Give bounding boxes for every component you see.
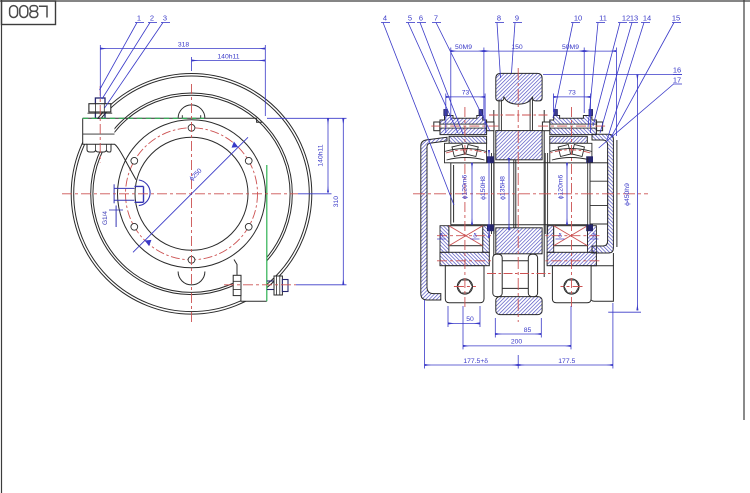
svg-text:50M9: 50M9 — [562, 44, 579, 51]
svg-text:11: 11 — [599, 14, 607, 23]
svg-text:4: 4 — [383, 14, 387, 23]
svg-text:73: 73 — [568, 90, 576, 97]
svg-text:7: 7 — [434, 14, 438, 23]
svg-text:8: 8 — [497, 14, 501, 23]
svg-text:ϕ135H8: ϕ135H8 — [500, 176, 507, 200]
svg-text:ϕ120m6: ϕ120m6 — [462, 174, 469, 199]
svg-text:310: 310 — [333, 196, 340, 208]
svg-text:2: 2 — [150, 14, 154, 23]
svg-text:6: 6 — [419, 14, 423, 23]
svg-text:10: 10 — [574, 14, 582, 23]
svg-text:δ: δ — [558, 233, 562, 240]
svg-text:G1/4: G1/4 — [102, 211, 109, 225]
svg-text:δ: δ — [473, 233, 477, 240]
svg-text:177.5: 177.5 — [558, 358, 575, 365]
svg-text:318: 318 — [178, 42, 190, 49]
svg-text:177.5+δ: 177.5+δ — [463, 358, 488, 365]
svg-text:200: 200 — [511, 339, 523, 346]
svg-text:ϕ450h9: ϕ450h9 — [624, 183, 631, 206]
svg-text:14: 14 — [643, 14, 651, 23]
svg-text:73: 73 — [462, 90, 470, 97]
svg-text:50: 50 — [466, 316, 474, 323]
svg-text:50M9: 50M9 — [455, 44, 472, 51]
svg-text:δ: δ — [592, 233, 596, 240]
svg-text:17: 17 — [673, 76, 681, 85]
svg-text:5: 5 — [408, 14, 412, 23]
svg-text:δ: δ — [440, 233, 444, 240]
svg-text:16: 16 — [673, 66, 681, 75]
svg-text:140h11: 140h11 — [217, 54, 239, 61]
svg-text:140h11: 140h11 — [318, 144, 325, 166]
svg-text:ϕ120m6: ϕ120m6 — [558, 174, 565, 199]
svg-text:1: 1 — [137, 14, 141, 23]
svg-text:15: 15 — [672, 14, 680, 23]
svg-text:9: 9 — [515, 14, 519, 23]
svg-text:ϕ150H8: ϕ150H8 — [480, 176, 487, 200]
svg-text:85: 85 — [524, 327, 532, 334]
svg-text:3: 3 — [163, 14, 167, 23]
svg-text:13: 13 — [630, 14, 638, 23]
